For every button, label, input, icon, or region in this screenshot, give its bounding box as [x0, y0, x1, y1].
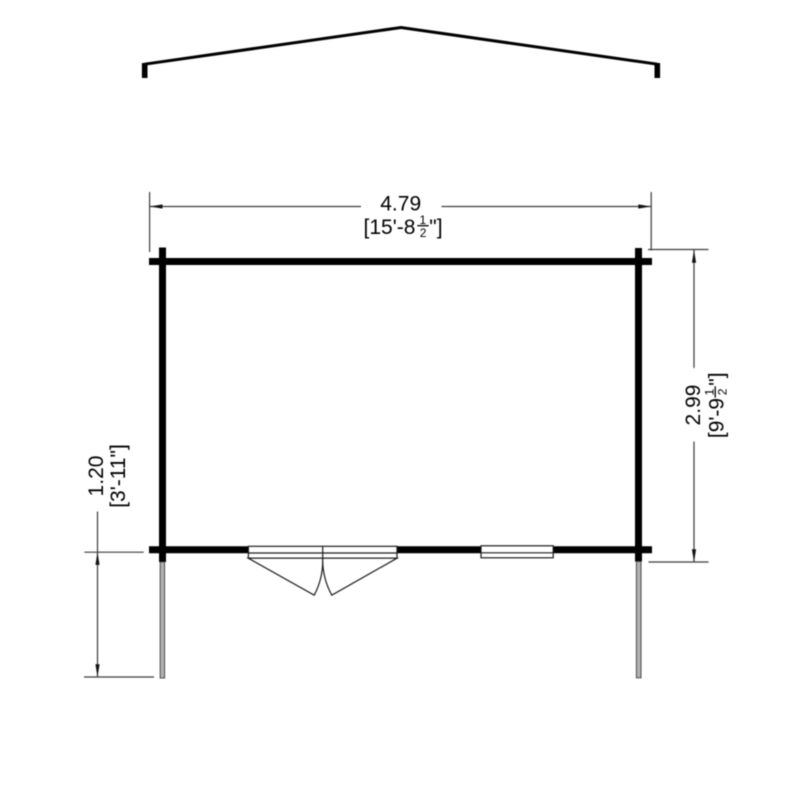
svg-text:4.79: 4.79 [380, 193, 421, 216]
svg-text:"]: "] [705, 372, 728, 385]
svg-text:2: 2 [716, 388, 730, 395]
svg-text:1: 1 [420, 213, 427, 227]
svg-text:"]: "] [429, 216, 442, 239]
svg-text:[15'-8: [15'-8 [364, 216, 416, 239]
svg-text:1: 1 [702, 389, 716, 396]
svg-text:1.20: 1.20 [85, 456, 108, 497]
svg-text:[3'-11"]: [3'-11"] [107, 444, 130, 508]
svg-text:2: 2 [420, 226, 427, 240]
svg-text:[9'-9: [9'-9 [705, 398, 728, 438]
